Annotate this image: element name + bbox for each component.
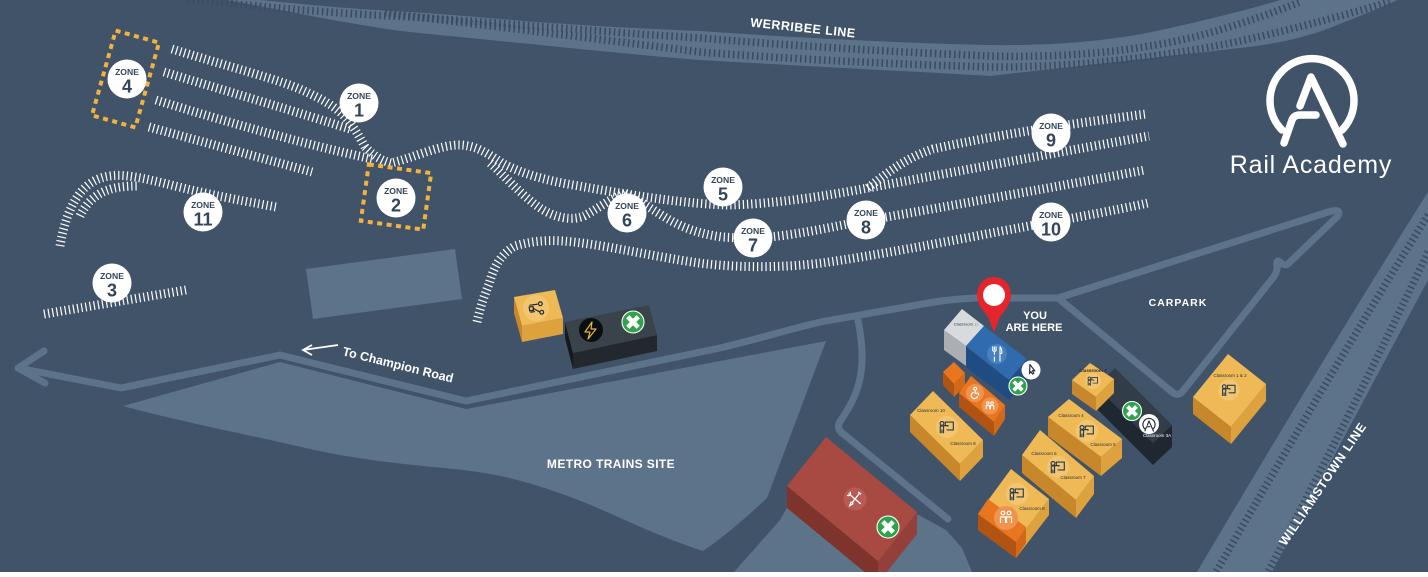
svg-text:11: 11: [193, 210, 212, 230]
svg-text:Classroom 11: Classroom 11: [954, 322, 979, 327]
svg-text:Classroom 10: Classroom 10: [917, 408, 945, 413]
svg-text:7: 7: [748, 236, 758, 256]
svg-text:ZONE: ZONE: [1039, 210, 1063, 220]
svg-text:METRO TRAINS SITE: METRO TRAINS SITE: [547, 457, 675, 471]
svg-text:Rail Academy: Rail Academy: [1230, 151, 1392, 179]
svg-text:6: 6: [622, 211, 632, 231]
svg-text:ZONE: ZONE: [191, 200, 215, 210]
svg-text:ZONE: ZONE: [347, 91, 371, 101]
svg-text:2: 2: [391, 196, 401, 216]
svg-text:8: 8: [861, 218, 871, 238]
svg-text:ARE HERE: ARE HERE: [1006, 322, 1063, 334]
svg-text:3: 3: [107, 281, 117, 301]
svg-text:ZONE: ZONE: [1039, 121, 1063, 131]
svg-text:CARPARK: CARPARK: [1149, 297, 1208, 309]
svg-text:ZONE: ZONE: [115, 67, 139, 77]
svg-text:ZONE: ZONE: [100, 271, 124, 281]
svg-text:4: 4: [122, 77, 132, 97]
svg-text:Classroom 8: Classroom 8: [1019, 506, 1045, 511]
svg-text:ZONE: ZONE: [854, 208, 878, 218]
svg-text:ZONE: ZONE: [384, 186, 408, 196]
svg-text:1: 1: [354, 101, 364, 121]
svg-text:Classroom 7: Classroom 7: [1060, 475, 1086, 480]
svg-text:ZONE: ZONE: [711, 175, 735, 185]
svg-text:Classroom 3: Classroom 3: [1079, 368, 1107, 373]
svg-text:Classroom 5: Classroom 5: [1090, 442, 1116, 447]
svg-text:9: 9: [1046, 131, 1056, 151]
svg-text:Classroom 9: Classroom 9: [950, 441, 976, 446]
svg-text:10: 10: [1041, 220, 1061, 240]
svg-text:Classroom 1 & 2: Classroom 1 & 2: [1213, 373, 1247, 378]
svg-text:YOU: YOU: [1023, 310, 1047, 322]
svg-text:Classroom 6: Classroom 6: [1031, 451, 1057, 456]
svg-text:ZONE: ZONE: [741, 226, 765, 236]
svg-text:Classroom 4: Classroom 4: [1058, 413, 1084, 418]
svg-text:ZONE: ZONE: [615, 201, 639, 211]
svg-text:5: 5: [718, 185, 728, 205]
